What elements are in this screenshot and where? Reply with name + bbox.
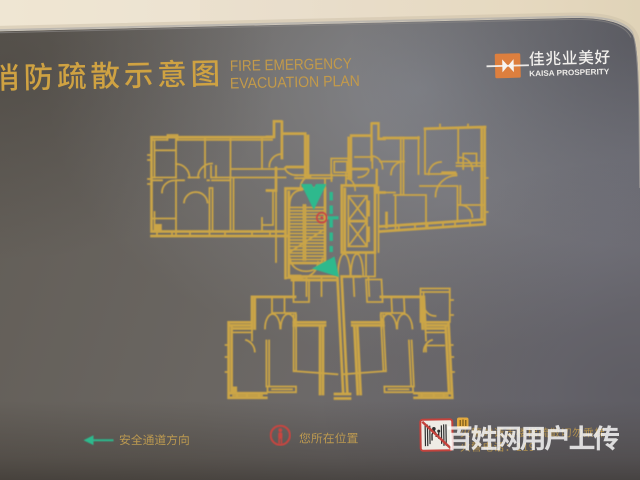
svg-text:FIRE EMERGENCY: FIRE EMERGENCY	[230, 55, 352, 75]
svg-text:EVACUATION PLAN: EVACUATION PLAN	[230, 73, 360, 93]
